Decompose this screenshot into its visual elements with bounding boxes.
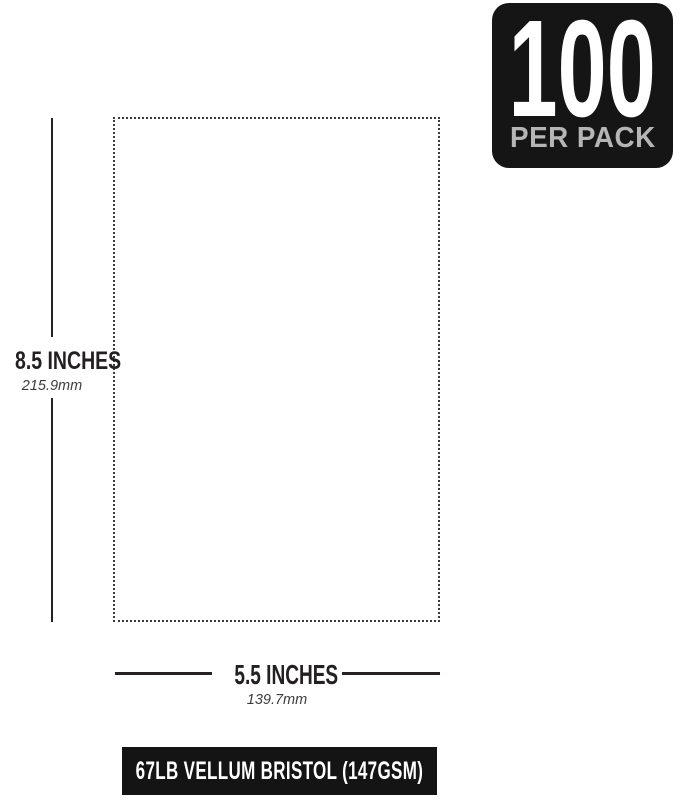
height-inches-label: 8.5 INCHES [15,349,121,373]
width-dimension-line-left [115,672,212,675]
height-dimension-label-group: 8.5 INCHES 215.9mm [0,349,104,394]
width-inches-label: 5.5 INCHES [234,661,338,688]
width-dimension-line-right [342,672,440,675]
paper-sheet-outline [113,117,440,622]
width-dimension-label-group: 5.5 INCHES 139.7mm [210,661,344,708]
height-dimension-line-bottom [51,398,53,622]
width-metric-label: 139.7mm [210,693,344,708]
pack-count-label: PER PACK [510,124,656,153]
height-metric-label: 215.9mm [0,379,104,394]
height-dimension-line-top [51,118,53,337]
product-dimension-diagram: 8.5 INCHES 215.9mm 5.5 INCHES 139.7mm 10… [0,0,679,801]
paper-type-bar: 67LB VELLUM BRISTOL (147GSM) [122,747,437,795]
paper-type-label: 67LB VELLUM BRISTOL (147GSM) [136,757,424,786]
per-pack-badge: 100 PER PACK [492,3,673,168]
pack-count-value: 100 [509,18,656,120]
